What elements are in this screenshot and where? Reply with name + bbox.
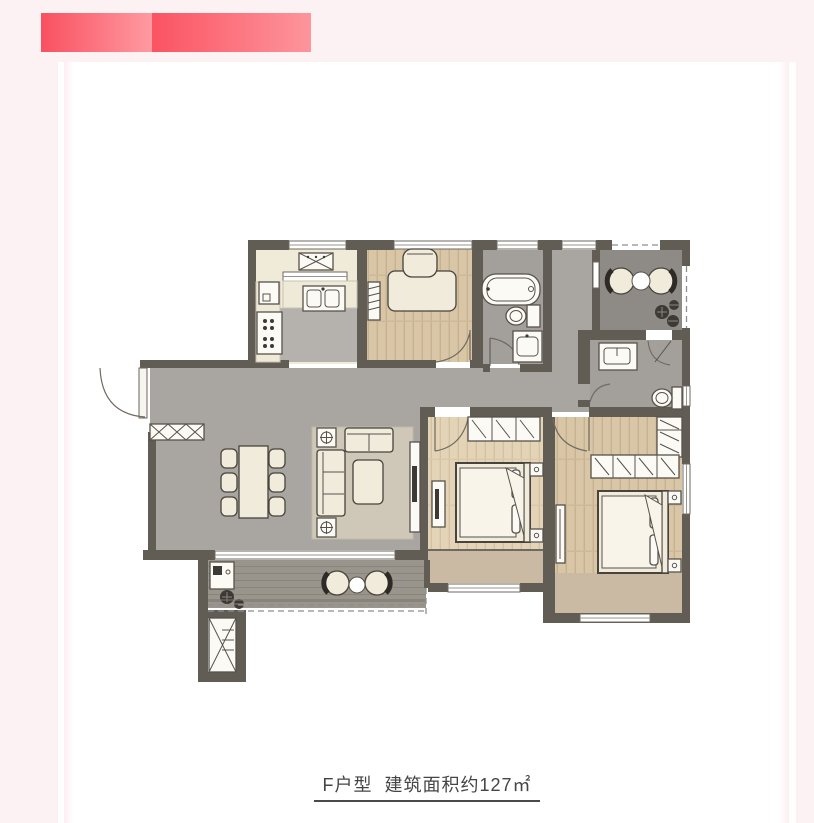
kitchen-walkway: [280, 308, 357, 362]
bathtub: [482, 274, 540, 305]
caption-text: F户型 建筑面积约127㎡: [314, 771, 539, 802]
vanity-main: [513, 331, 542, 362]
terrace-chair-2: [648, 268, 675, 294]
terrace-table: [632, 272, 650, 290]
balcony-table: [349, 577, 365, 593]
balcony-chair-2: [365, 571, 390, 595]
balcony-cabinet: [210, 562, 234, 589]
wardrobe-master: [591, 455, 679, 478]
bed-master: [598, 491, 668, 573]
tv-board-second: [432, 481, 445, 527]
hallway-floor: [428, 368, 552, 407]
bookshelf: [368, 282, 380, 320]
coffee-table: [353, 460, 383, 504]
bedroom-second-bay-line: [428, 549, 543, 551]
vent-shaft-bottom: [209, 618, 236, 672]
floorplan-image: [0, 0, 814, 823]
bed-second: [456, 463, 530, 542]
tv-cabinet: [410, 442, 420, 532]
bedroom-master-bay: [555, 573, 682, 613]
dining-table: [239, 446, 268, 518]
loveseat: [345, 428, 393, 452]
desk-chair: [403, 249, 437, 277]
tv: [412, 466, 417, 502]
bedroom-second-bay: [428, 551, 543, 583]
terrace-chair-1: [607, 268, 634, 294]
wardrobe-second: [468, 417, 540, 441]
sofa-set: [312, 427, 413, 539]
page-background: { "page": { "background": "#fdf2f3", "ca…: [0, 0, 814, 823]
caption: F户型 建筑面积约127㎡: [58, 771, 796, 802]
side-table-1: [317, 428, 336, 447]
wardrobe-master-corner: [657, 417, 682, 457]
toilet-ensuite: [652, 387, 682, 409]
entry-door: [100, 368, 147, 418]
dining-set: [221, 446, 285, 518]
kitchen-sink: [303, 286, 345, 311]
vanity-ensuite: [599, 343, 637, 370]
sofa: [317, 450, 345, 516]
side-table-2: [317, 518, 336, 537]
balcony-chair-1: [324, 571, 349, 595]
vent-shaft-top: [299, 253, 333, 270]
shoe-cabinet: [150, 424, 204, 440]
kitchen-stove: [257, 312, 282, 354]
